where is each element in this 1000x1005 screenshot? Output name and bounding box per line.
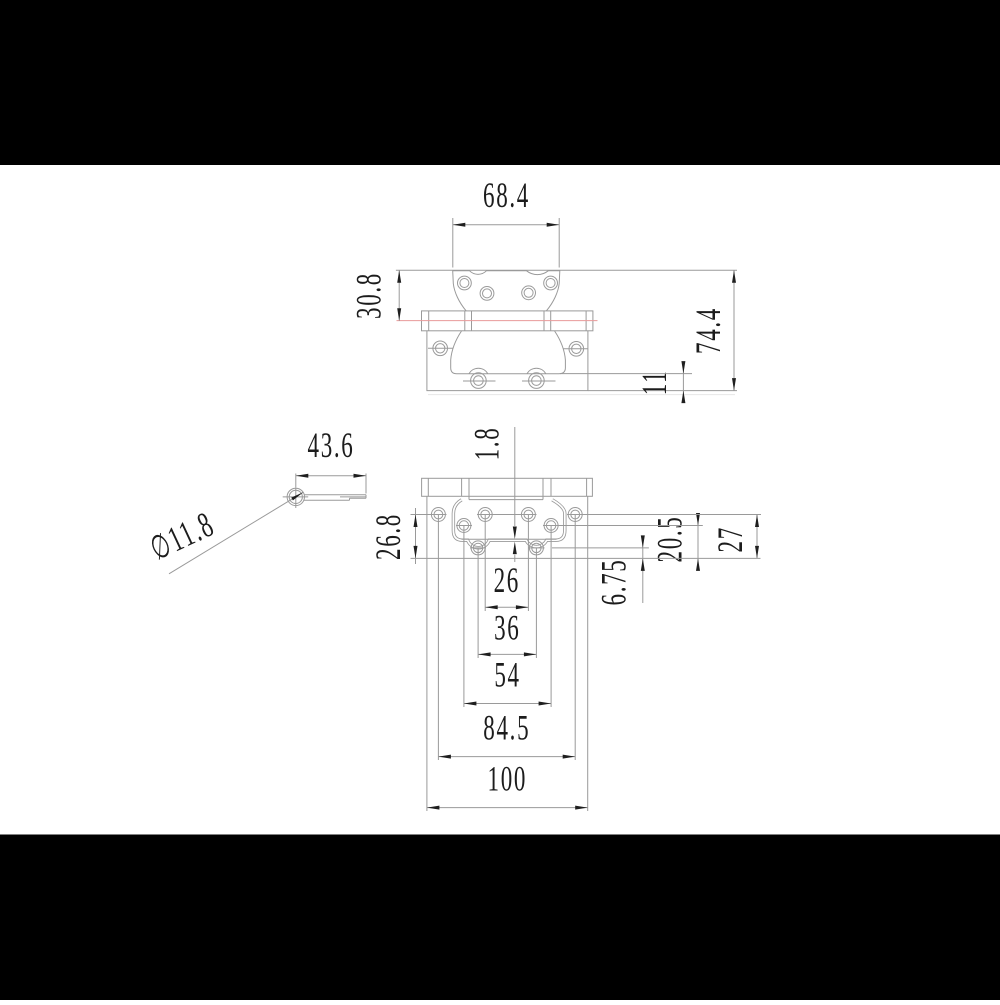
svg-text:36: 36 bbox=[494, 607, 520, 647]
svg-text:74.4: 74.4 bbox=[688, 307, 728, 354]
svg-text:43.6: 43.6 bbox=[308, 425, 355, 465]
svg-text:100: 100 bbox=[488, 758, 528, 798]
svg-text:30.8: 30.8 bbox=[348, 272, 388, 319]
svg-text:68.4: 68.4 bbox=[483, 175, 530, 215]
svg-text:27: 27 bbox=[710, 526, 750, 552]
svg-text:20.5: 20.5 bbox=[649, 516, 689, 563]
svg-text:1.8: 1.8 bbox=[466, 427, 506, 461]
svg-text:26.8: 26.8 bbox=[368, 513, 408, 560]
svg-text:26: 26 bbox=[494, 560, 520, 600]
svg-text:84.5: 84.5 bbox=[483, 707, 530, 747]
svg-text:6.75: 6.75 bbox=[593, 559, 633, 606]
svg-text:54: 54 bbox=[494, 654, 520, 694]
